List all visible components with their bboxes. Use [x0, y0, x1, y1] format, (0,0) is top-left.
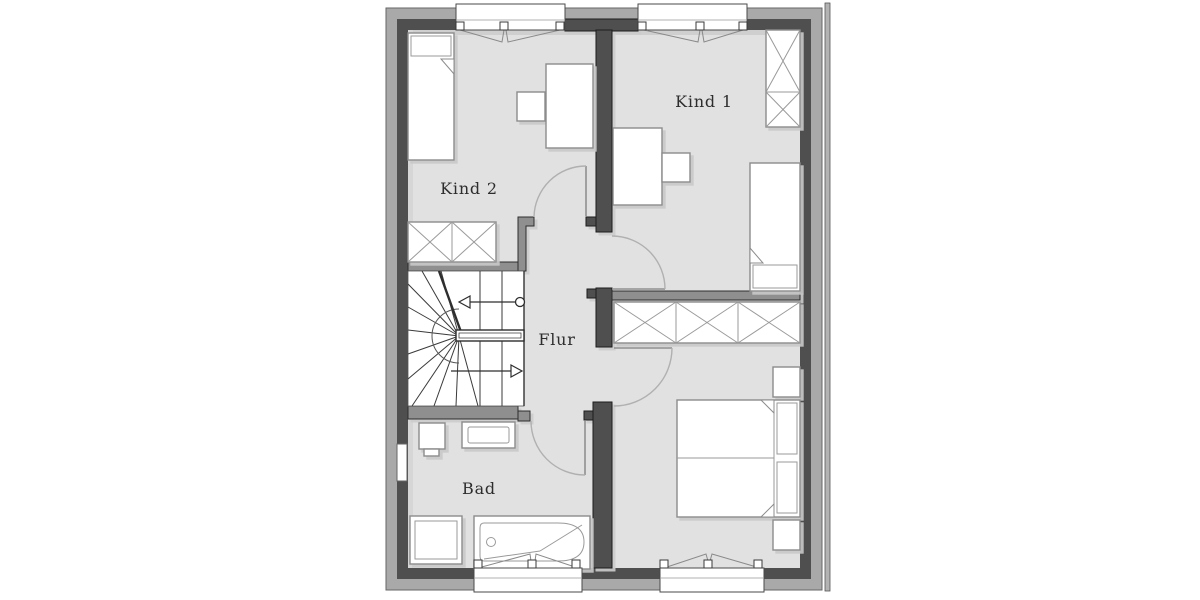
wardrobe-bedroom: [614, 302, 800, 343]
wall-flur-bedroom-upper: [596, 288, 612, 347]
toilet-cistern: [424, 449, 439, 456]
floorplan-page: Kind 1 Kind 2 Flur Bad: [0, 0, 1200, 600]
bed-kind1: [750, 163, 800, 291]
wall-kind2-kind1: [596, 30, 612, 232]
wardrobe-kind1: [766, 30, 800, 127]
desk-kind2: [546, 64, 593, 148]
double-bed: [677, 400, 800, 517]
label-kind2: Kind 2: [440, 179, 498, 198]
desk-kind1: [613, 128, 662, 205]
wall-kind1-bedroom: [612, 291, 800, 300]
door-jamb-kind2: [586, 217, 596, 226]
wall-bad-north: [408, 406, 518, 419]
shower-tray: [410, 516, 462, 564]
stair-start-circle: [516, 298, 525, 307]
door-jamb-kind1: [587, 289, 596, 298]
wall-bad-north-step: [518, 411, 530, 421]
wall-kind2-stairs: [408, 262, 526, 271]
label-flur: Flur: [538, 330, 575, 349]
wardrobe-kind2: [408, 222, 496, 262]
toilet: [419, 423, 445, 449]
washbasin: [462, 422, 515, 448]
stair-handrail: [456, 330, 524, 341]
label-bad: Bad: [462, 479, 496, 498]
window-pier-wall: [565, 19, 638, 31]
chair-kind1: [662, 153, 690, 182]
staircase: [408, 271, 525, 406]
label-kind1: Kind 1: [675, 92, 733, 111]
chair-kind2: [517, 92, 545, 121]
wall-niche-bad: [397, 444, 407, 481]
wall-bad-bedroom: [593, 402, 612, 568]
door-jamb-bad: [584, 411, 593, 420]
bed-kind2: [408, 33, 454, 160]
floorplan-drawing: Kind 1 Kind 2 Flur Bad: [0, 0, 1200, 600]
nightstand-bottom: [773, 520, 800, 550]
nightstand-top: [773, 367, 800, 397]
party-wall-strip: [825, 3, 830, 591]
